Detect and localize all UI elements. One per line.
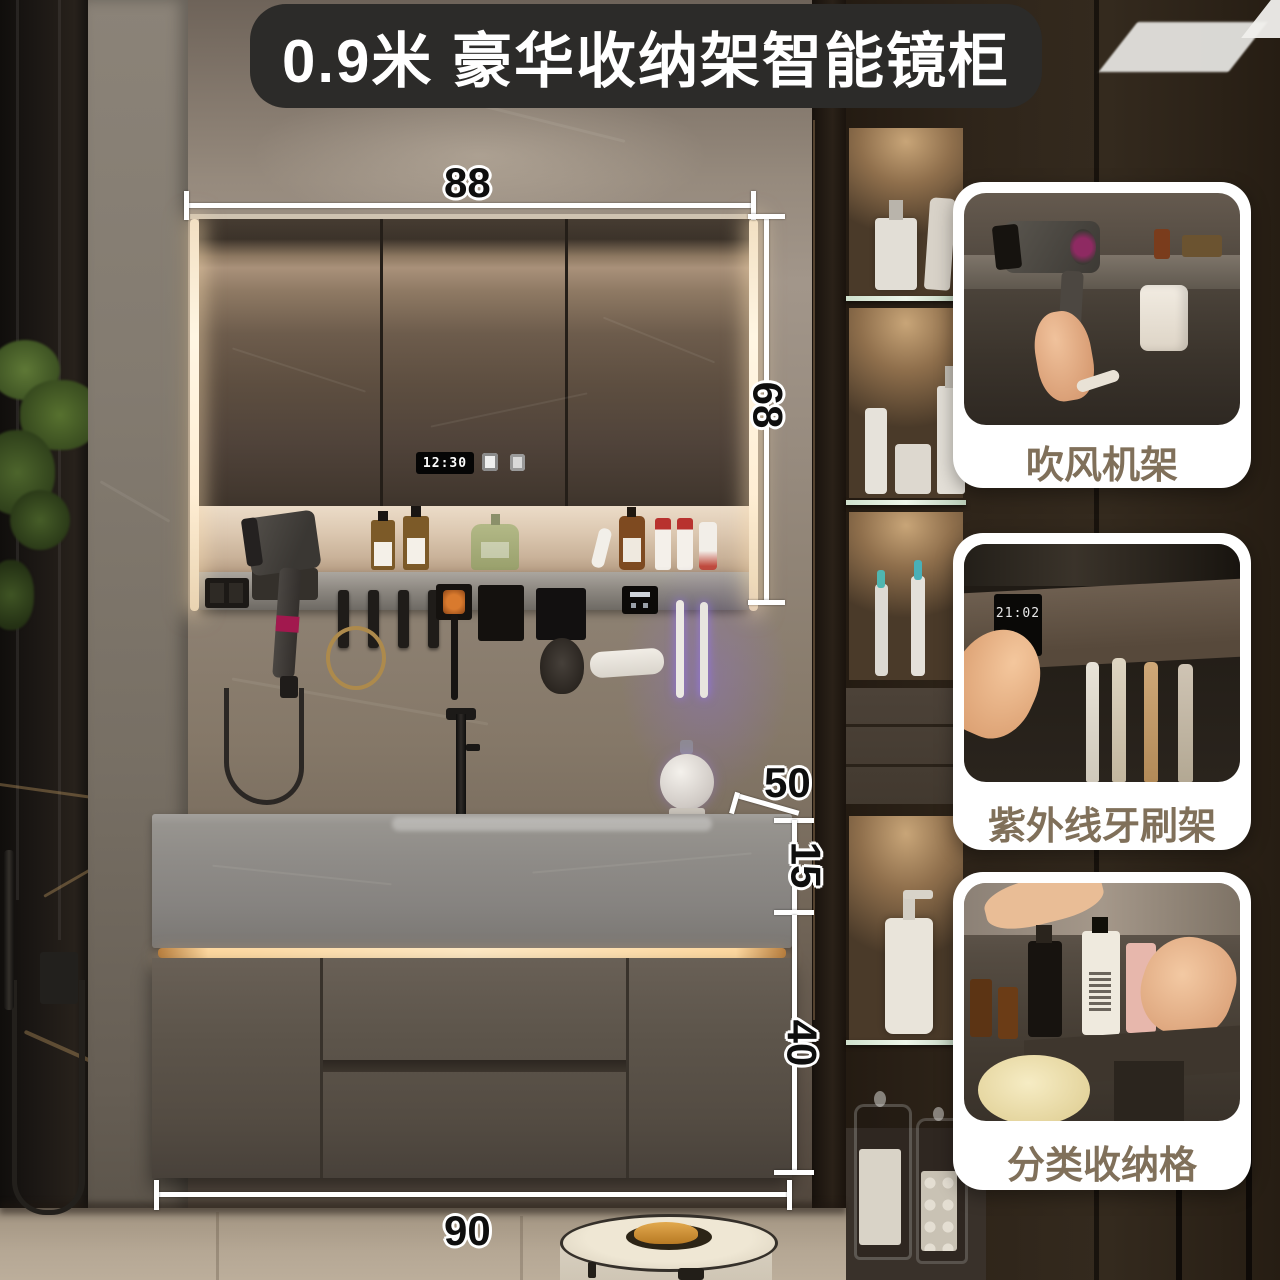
glass-shelf [846,1040,966,1045]
hair-dryer-cord [224,688,304,805]
razor[interactable] [443,590,465,614]
cabinet-door-right[interactable] [629,958,792,1178]
white-tube [590,527,612,569]
title-banner: 0.9米 豪华收纳架智能镜柜 [250,4,1042,108]
dimension-cap [787,1180,792,1210]
cabinet-door-left[interactable] [152,958,320,1178]
glass-shelf [846,500,966,505]
amber-round-bottle [619,516,645,570]
glass-shelf [846,296,966,301]
photo-cosmetics [1182,235,1222,257]
photo-toothbrush [1112,658,1126,782]
drawer-top[interactable] [323,958,626,1060]
electric-toothbrush [875,584,888,676]
perfume-bottle [875,218,917,290]
cosmetic-tube [924,197,956,291]
vanity-cabinet [152,958,792,1178]
mirror-door-left[interactable] [199,219,380,506]
ceiling-light-reflection [1241,0,1280,38]
light-toggle-icon[interactable] [510,454,525,471]
feature-photo-storage [964,883,1240,1121]
mirror-door-right[interactable] [568,219,749,506]
lighted-niche [849,308,963,498]
feature-card-uv-toothbrush-rack[interactable]: 21:02 紫外线牙刷架 [953,533,1251,850]
mirror-door-center[interactable] [383,219,565,506]
photo-dark-box [1114,1061,1184,1121]
floor-tile-seam [216,1212,219,1280]
under-counter-led [158,948,786,958]
rail-hook[interactable] [398,590,409,648]
dimension-cap [748,600,785,605]
jar-lid-knob [874,1091,886,1107]
photo-toothbrush [1178,664,1193,782]
uv-toothbrush[interactable] [676,600,684,698]
lighted-niche [849,816,963,1040]
uv-toothbrush[interactable] [700,602,708,698]
countertop [152,814,792,948]
hair-dryer[interactable] [248,508,322,708]
lotion-pump-spout [903,890,933,899]
photo-amber-vials [998,987,1018,1039]
smart-clock-display[interactable]: 12:30 [416,452,474,474]
product-image: 12:30 [0,0,1280,1280]
dimension-counter-depth: 50 [764,762,811,804]
feature-photo-toothbrush: 21:02 [964,544,1240,782]
door-seam [380,219,383,506]
razor-handle [451,614,458,700]
shower-handle [4,850,14,1010]
dimension-line-vanity-width [156,1192,790,1197]
drawer-bottom[interactable] [323,1072,626,1178]
dimension-mirror-width: 88 [444,162,491,204]
dimension-mirror-height: 68 [746,382,788,429]
lotion-pump-neck [903,896,915,920]
photo-amber-vials [970,979,992,1037]
robot-vacuum [560,1214,772,1280]
photo-bottle-black [1028,941,1062,1037]
makeup-brush[interactable] [540,638,584,694]
photo-cosmetics [1154,229,1170,259]
dimension-cap [184,191,189,220]
power-socket[interactable] [205,578,249,608]
photo-toothbrush [1144,662,1158,782]
mini-display-panel[interactable] [622,586,658,614]
toothbrush-head [877,570,885,588]
banner-title: 0.9米 豪华收纳架智能镜柜 [282,13,1010,100]
dimension-cap [748,214,785,219]
photo-clock-time: 21:02 [996,606,1040,621]
amber-bottle [403,516,429,570]
storage-box [536,588,586,640]
ceiling-light-reflection [1098,22,1267,72]
dimension-vanity-width: 90 [444,1210,491,1252]
door-seam [565,219,568,506]
dimension-line-width [186,203,754,208]
feature-label-hair-dryer-rack: 吹风机架 [953,434,1251,489]
feature-photo-hair-dryer [964,193,1240,425]
lighted-niche [849,128,963,298]
photo-bottle-white [1082,931,1120,1035]
dimension-counter-thickness: 15 [784,842,826,889]
electric-toothbrush [911,576,925,676]
glass-jar [854,1104,912,1260]
toothbrush-head [914,560,922,580]
led-strip-left [190,219,199,611]
feature-label-storage-compartments: 分类收纳格 [953,1134,1251,1189]
lotion-pump-bottle [885,918,933,1034]
clock-time: 12:30 [423,456,467,471]
photo-hair-dryer [1004,221,1100,273]
green-perfume-bottle [471,524,519,570]
jar-lid-knob [933,1107,944,1121]
dimension-cap [774,1170,814,1175]
feature-card-hair-dryer-rack[interactable]: 吹风机架 [953,182,1251,488]
cosmetic-tube-red [655,518,671,570]
basin-rim-highlight [392,817,712,831]
floor-shadow [0,1202,846,1214]
mirror-doors: 12:30 [199,219,749,506]
photo-toothbrush [1086,662,1099,782]
perfume-bottle-cap [889,200,903,220]
dimension-cap [154,1180,159,1210]
feature-card-storage-compartments[interactable]: 分类收纳格 [953,872,1251,1190]
defog-icon[interactable] [482,453,498,471]
plant [0,320,100,650]
photo-marble-cup [1140,285,1188,351]
right-dark-column [812,0,846,1280]
gold-ring-hanger[interactable] [326,626,386,690]
hair-dryer-magenta-ring [275,615,299,633]
shower-hose [12,980,85,1215]
photo-hand [1029,307,1100,405]
photo-cream-jar [978,1055,1090,1121]
amber-bottle [371,520,395,570]
feature-label-uv-toothbrush-rack: 紫外线牙刷架 [953,795,1251,850]
soap-dispenser[interactable] [660,748,714,818]
cabinet-drawers [846,688,966,804]
faucet[interactable] [456,714,466,818]
spray-bottle [865,408,887,494]
floor-tile-seam [520,1216,523,1280]
lighted-niche [849,512,963,680]
faucet-handle[interactable] [466,744,480,751]
cream-jar [895,444,931,494]
storage-box [478,585,524,641]
drawer-handle-groove[interactable] [323,1060,626,1072]
white-roller[interactable] [589,647,665,678]
dimension-cabinet-height: 40 [780,1020,822,1067]
